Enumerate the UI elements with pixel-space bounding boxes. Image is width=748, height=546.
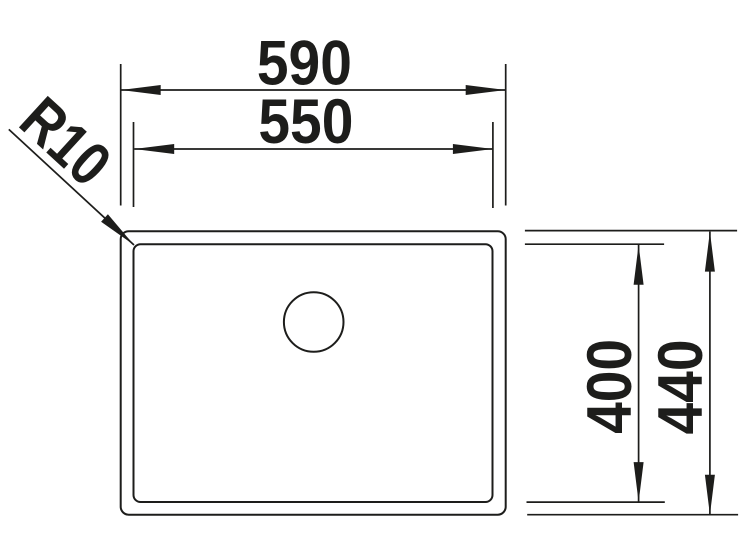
svg-text:440: 440 bbox=[646, 340, 716, 435]
svg-text:400: 400 bbox=[575, 339, 645, 434]
svg-text:550: 550 bbox=[258, 87, 353, 157]
